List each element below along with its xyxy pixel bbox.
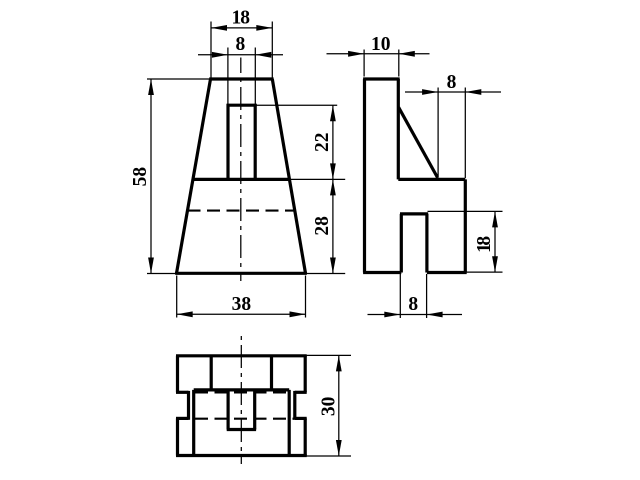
svg-text:8: 8: [447, 72, 457, 93]
svg-text:58: 58: [130, 167, 151, 187]
svg-text:18: 18: [474, 236, 495, 253]
svg-text:38: 38: [232, 294, 252, 315]
svg-text:18: 18: [231, 7, 250, 28]
svg-text:28: 28: [312, 216, 333, 236]
svg-text:30: 30: [319, 397, 340, 417]
svg-text:8: 8: [236, 34, 246, 55]
svg-text:22: 22: [312, 132, 333, 152]
svg-text:8: 8: [408, 294, 418, 315]
svg-text:10: 10: [371, 34, 391, 55]
